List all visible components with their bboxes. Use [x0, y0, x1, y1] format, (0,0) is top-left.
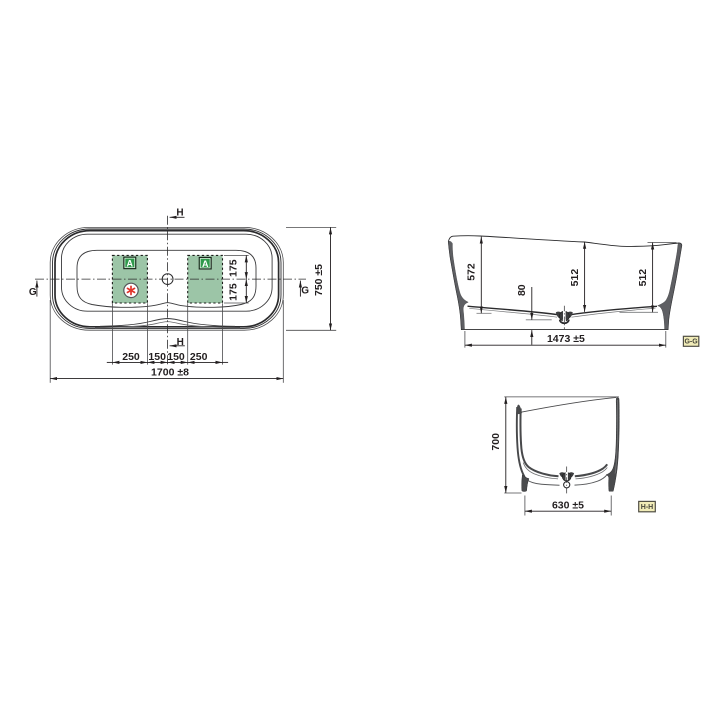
svg-text:H-H: H-H — [641, 504, 653, 511]
svg-text:G: G — [29, 287, 37, 298]
svg-text:175: 175 — [228, 283, 240, 301]
svg-text:175: 175 — [228, 259, 240, 277]
svg-text:700: 700 — [490, 433, 502, 451]
svg-text:H: H — [177, 337, 184, 348]
svg-text:250: 250 — [190, 351, 208, 363]
svg-text:A: A — [127, 259, 134, 269]
svg-text:750 ±5: 750 ±5 — [313, 264, 325, 296]
svg-text:512: 512 — [637, 269, 649, 287]
svg-text:1473 ±5: 1473 ±5 — [547, 333, 585, 345]
svg-text:572: 572 — [466, 263, 478, 281]
svg-text:150: 150 — [148, 351, 166, 363]
svg-text:250: 250 — [122, 351, 140, 363]
svg-text:G: G — [301, 285, 309, 296]
svg-text:630 ±5: 630 ±5 — [552, 499, 584, 511]
svg-text:512: 512 — [569, 269, 581, 287]
svg-text:G-G: G-G — [684, 339, 698, 346]
svg-text:A: A — [202, 259, 209, 269]
svg-text:150: 150 — [167, 351, 185, 363]
svg-text:80: 80 — [516, 284, 528, 296]
svg-text:1700 ±8: 1700 ±8 — [151, 366, 189, 378]
